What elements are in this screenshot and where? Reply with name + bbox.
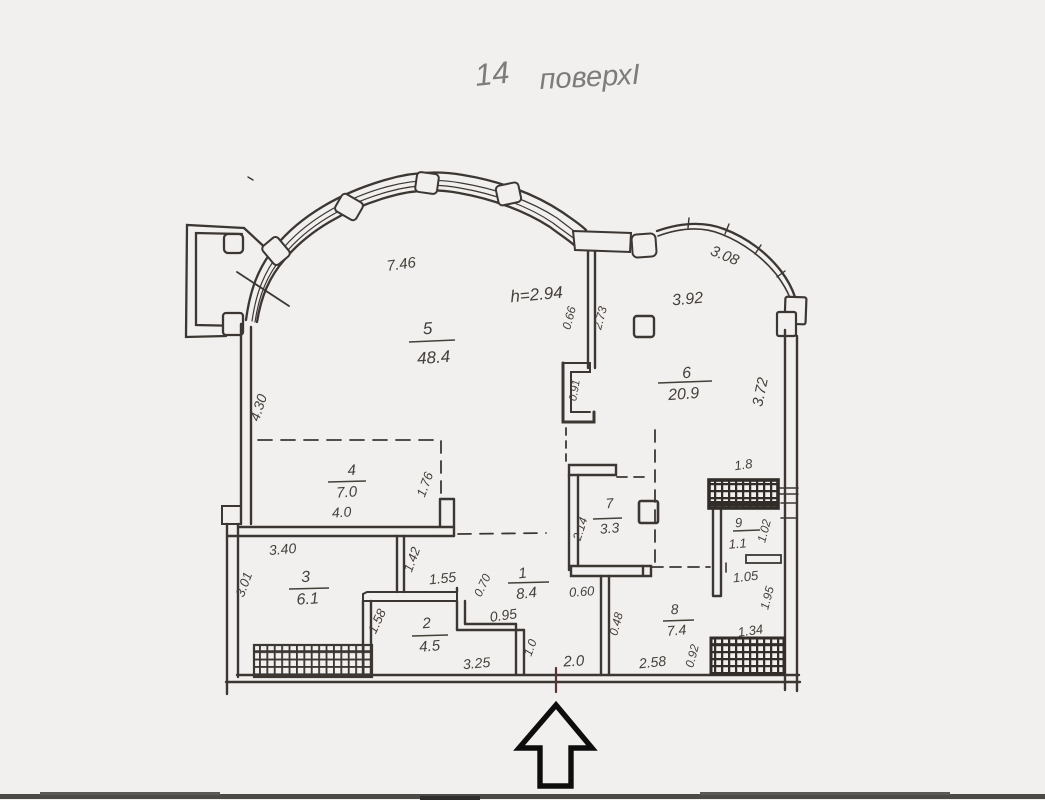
svg-text:9: 9 (734, 515, 743, 531)
svg-text:4.5: 4.5 (418, 637, 441, 656)
svg-text:5: 5 (422, 319, 433, 339)
svg-text:4: 4 (347, 462, 357, 480)
svg-text:2.0: 2.0 (562, 652, 585, 670)
svg-text:1: 1 (517, 565, 527, 583)
svg-text:3.92: 3.92 (671, 290, 704, 310)
svg-text:2.58: 2.58 (637, 653, 667, 672)
svg-text:3.40: 3.40 (268, 540, 297, 558)
svg-text:6: 6 (682, 365, 692, 383)
svg-text:3.3: 3.3 (599, 519, 620, 537)
svg-text:8.4: 8.4 (515, 584, 538, 603)
svg-text:7.0: 7.0 (336, 483, 359, 501)
svg-text:7.4: 7.4 (666, 621, 687, 639)
svg-text:8: 8 (670, 601, 679, 618)
svg-text:3.25: 3.25 (462, 654, 491, 672)
svg-text:6.1: 6.1 (296, 590, 319, 609)
svg-text:14: 14 (473, 55, 511, 93)
svg-text:1.1: 1.1 (728, 535, 747, 552)
svg-text:1.8: 1.8 (733, 456, 754, 473)
svg-text:1.55: 1.55 (428, 569, 457, 588)
svg-text:20.9: 20.9 (667, 385, 700, 404)
svg-text:48.4: 48.4 (416, 347, 450, 368)
svg-text:1.05: 1.05 (732, 568, 759, 586)
svg-text:4.0: 4.0 (331, 503, 352, 520)
svg-text:3: 3 (301, 569, 311, 587)
svg-text:поверхІ: поверхІ (539, 59, 641, 96)
svg-text:0.60: 0.60 (569, 583, 596, 600)
